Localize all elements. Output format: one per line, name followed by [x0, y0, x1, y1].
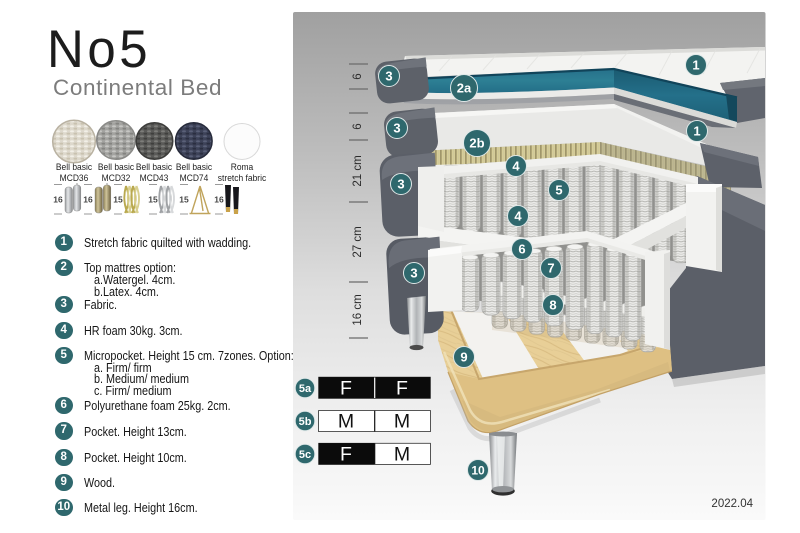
- svg-text:27 cm: 27 cm: [352, 226, 364, 257]
- svg-text:2a: 2a: [457, 81, 472, 96]
- svg-text:6: 6: [352, 123, 364, 129]
- svg-text:2b: 2b: [469, 136, 484, 151]
- svg-text:6: 6: [518, 242, 525, 257]
- svg-text:M: M: [394, 411, 410, 433]
- svg-text:F: F: [340, 443, 352, 465]
- svg-text:5b: 5b: [299, 416, 312, 428]
- svg-text:5c: 5c: [299, 449, 311, 461]
- svg-text:8: 8: [549, 298, 556, 313]
- svg-text:3: 3: [397, 177, 404, 192]
- svg-text:5: 5: [555, 183, 562, 198]
- svg-text:16 cm: 16 cm: [352, 294, 364, 325]
- svg-text:3: 3: [393, 121, 400, 136]
- svg-text:10: 10: [471, 463, 485, 477]
- svg-text:3: 3: [385, 69, 392, 84]
- svg-text:4: 4: [514, 209, 522, 224]
- svg-text:3: 3: [410, 266, 417, 281]
- svg-text:F: F: [340, 377, 352, 399]
- svg-text:5a: 5a: [299, 383, 312, 395]
- svg-text:M: M: [338, 411, 354, 433]
- svg-text:9: 9: [460, 350, 467, 365]
- svg-text:F: F: [396, 377, 408, 399]
- svg-text:7: 7: [547, 261, 554, 276]
- svg-text:1: 1: [692, 58, 699, 73]
- svg-text:21 cm: 21 cm: [352, 155, 364, 186]
- svg-text:4: 4: [512, 159, 520, 174]
- svg-text:2022.04: 2022.04: [711, 498, 753, 510]
- svg-text:M: M: [394, 443, 410, 465]
- svg-text:1: 1: [693, 124, 700, 139]
- svg-text:6: 6: [352, 73, 364, 79]
